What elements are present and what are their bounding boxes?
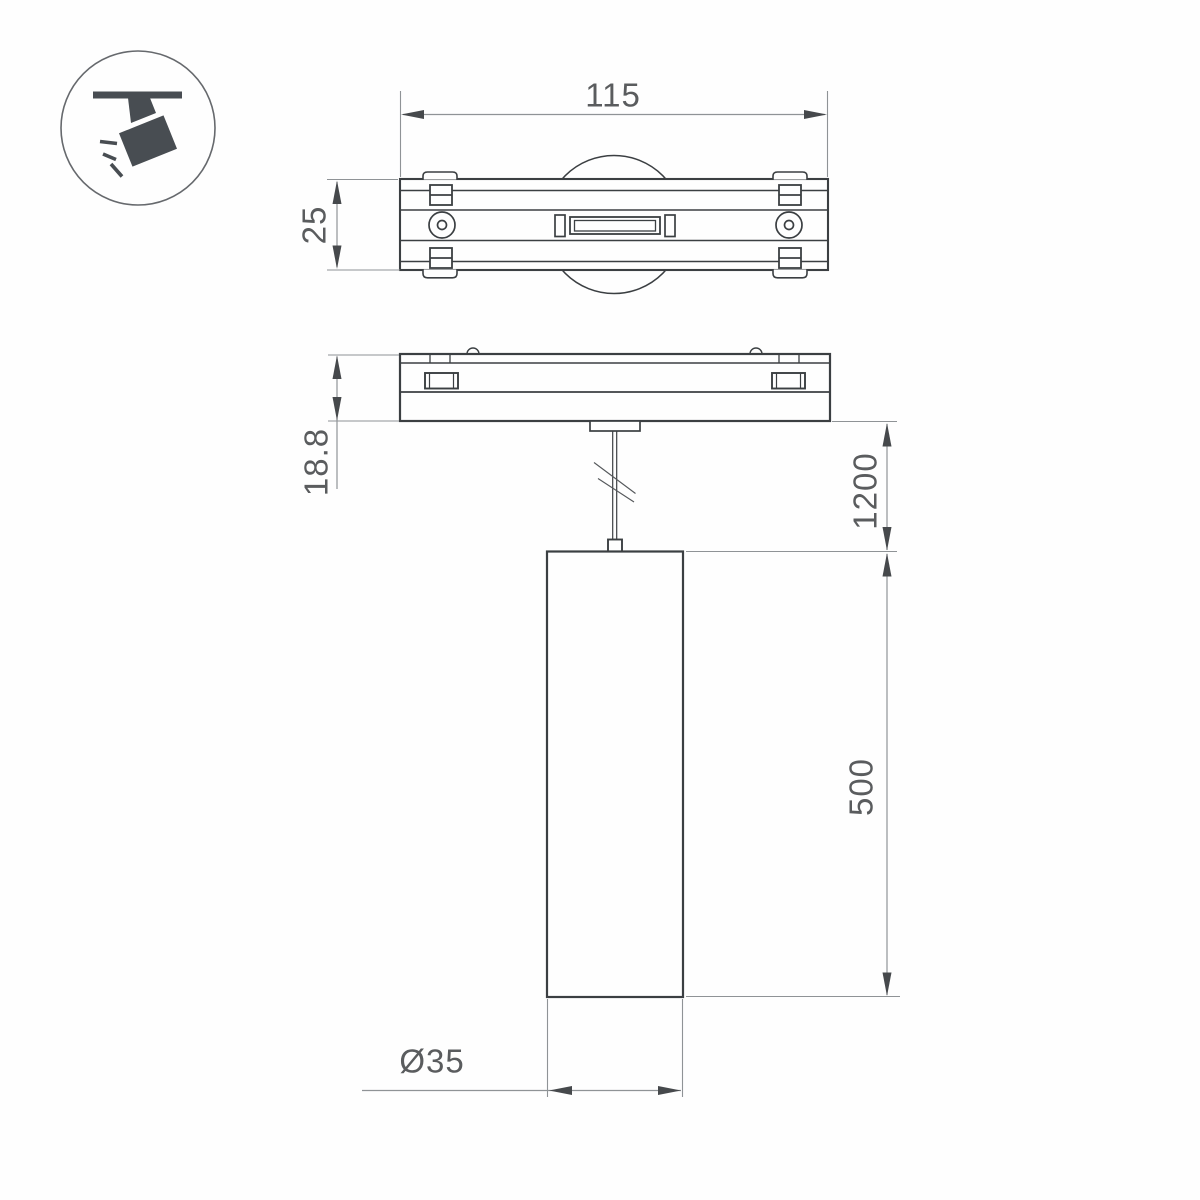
drawing-canvas	[0, 0, 1200, 1200]
icon-spotlight-head	[119, 115, 177, 166]
dim-track-depth-label: 25	[298, 206, 331, 245]
cable-gland	[590, 421, 640, 431]
icon-stem	[128, 98, 156, 123]
dim-track-depth	[327, 180, 400, 271]
dim-adapter-height-label: 18.8	[300, 428, 333, 496]
side-view-adapter	[400, 348, 830, 431]
dim-track-width-label: 115	[585, 79, 641, 112]
icon-ceiling-bar	[93, 92, 182, 99]
track-spotlight-icon	[61, 51, 215, 205]
technical-drawing-page: 115 25 18.8 1200 500 Ø35	[0, 0, 1200, 1200]
dim-suspension-length-label: 1200	[849, 452, 882, 529]
dim-pendant-diameter-label: Ø35	[399, 1045, 464, 1078]
side-view-body	[400, 354, 830, 421]
top-view-adapter	[400, 156, 828, 294]
icon-light-rays	[100, 142, 122, 177]
pendant-cylinder	[547, 552, 683, 998]
suspension-wire	[594, 431, 636, 552]
dim-adapter-height	[328, 355, 399, 489]
top-view-center-slot	[555, 215, 675, 237]
dim-pendant-height-label: 500	[845, 758, 878, 816]
wire-break-symbol	[594, 463, 636, 503]
wire-connector	[608, 540, 622, 552]
